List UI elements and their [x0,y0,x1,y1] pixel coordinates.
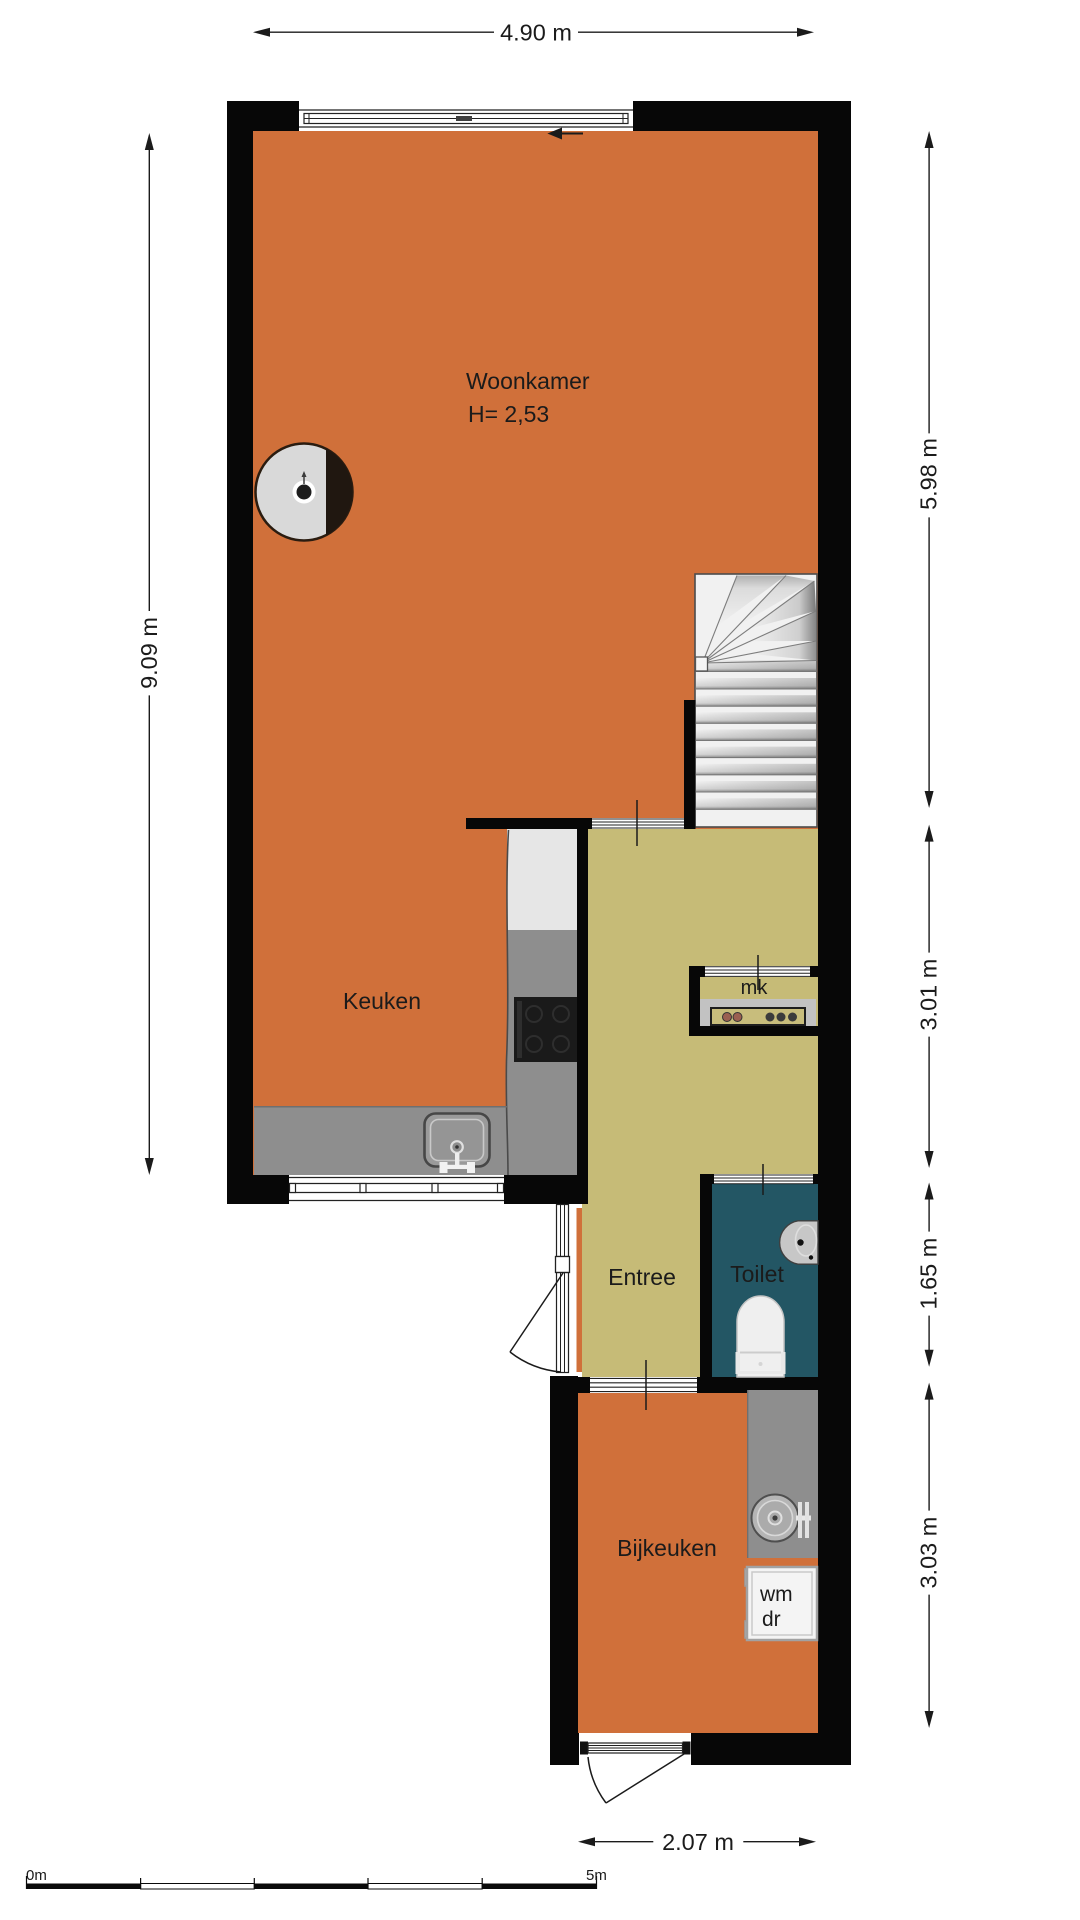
svg-text:mk: mk [741,977,769,999]
svg-text:3.01 m: 3.01 m [916,959,942,1031]
svg-text:5m: 5m [586,1867,607,1884]
svg-text:Toilet: Toilet [730,1261,784,1287]
svg-text:4.90 m: 4.90 m [500,20,572,46]
svg-text:Entree: Entree [608,1264,676,1290]
svg-text:2.07 m: 2.07 m [662,1829,734,1855]
svg-text:Bijkeuken: Bijkeuken [617,1535,717,1561]
svg-text:1.65 m: 1.65 m [916,1238,942,1310]
svg-text:Woonkamer: Woonkamer [466,368,590,394]
svg-text:3.03 m: 3.03 m [916,1517,942,1589]
svg-text:5.98 m: 5.98 m [916,438,942,510]
svg-text:0m: 0m [26,1867,47,1884]
svg-text:H= 2,53: H= 2,53 [468,401,549,427]
svg-text:dr: dr [762,1608,781,1631]
svg-text:9.09 m: 9.09 m [136,617,162,689]
svg-text:wm: wm [759,1583,793,1606]
svg-text:Keuken: Keuken [343,988,421,1014]
